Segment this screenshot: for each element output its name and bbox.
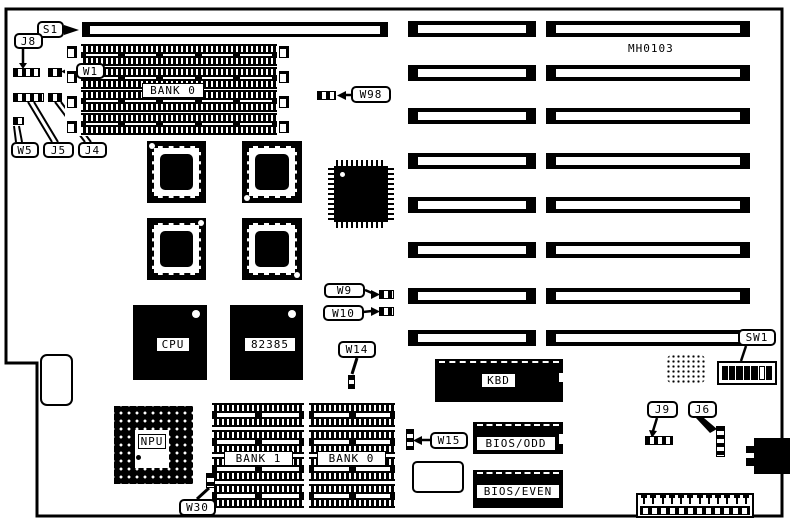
j9-jumper	[645, 436, 673, 445]
npu-label: NPU	[138, 434, 166, 449]
w5-jumper	[13, 117, 24, 125]
qfp-chip	[328, 160, 394, 228]
callout-w5: W5	[11, 142, 39, 158]
bank0-bottom-label: BANK 0	[317, 451, 386, 466]
j5-jumper	[13, 93, 44, 102]
plcc-chip	[147, 141, 206, 203]
w98-leader-arrow	[337, 91, 346, 100]
callout-w15: W15	[430, 432, 468, 449]
expansion-slot	[408, 108, 536, 124]
w15-leader-arrow	[413, 436, 422, 445]
power-connector-sockets	[640, 506, 750, 515]
j5-leader	[28, 102, 52, 142]
pin1-dot	[192, 310, 200, 318]
board-part-number: MH0103	[628, 42, 674, 55]
j6-leader	[696, 418, 717, 433]
dip-socket-row	[309, 403, 395, 427]
w14-jumper	[348, 375, 355, 389]
callout-j4: J4	[78, 142, 107, 158]
expansion-slot	[408, 242, 536, 258]
w15-jumper	[406, 429, 414, 450]
expansion-slot	[546, 65, 750, 81]
w14-leader	[352, 358, 357, 374]
j5-leader	[34, 102, 58, 142]
expansion-slot	[546, 330, 750, 346]
callout-w1: W1	[76, 63, 105, 79]
pin1-dot	[244, 195, 250, 201]
callout-sw1: SW1	[738, 329, 776, 346]
w5-leader	[14, 126, 16, 142]
socket-pins	[81, 58, 277, 66]
w5-leader	[19, 126, 22, 142]
s1-slot	[82, 22, 388, 37]
qfp-pins	[388, 168, 394, 220]
plcc-chip	[242, 141, 302, 203]
bank-end-brackets	[277, 44, 293, 135]
expansion-slot	[408, 153, 536, 169]
pin1-dot	[149, 143, 155, 149]
dip-socket-row	[309, 484, 395, 508]
power-connector	[636, 493, 754, 518]
speaker-pad	[666, 354, 706, 384]
expansion-slot	[408, 197, 536, 213]
bank-end-brackets	[65, 44, 81, 135]
expansion-slot	[408, 65, 536, 81]
power-connector-pins	[640, 495, 750, 506]
pin1-dot	[136, 455, 141, 460]
dip-socket-row	[212, 484, 304, 508]
w30-leader	[197, 488, 209, 499]
chip-notch	[559, 434, 563, 444]
socket-pins	[81, 44, 277, 52]
simm-socket	[81, 44, 277, 66]
callout-j6: J6	[688, 401, 717, 418]
simm-socket	[81, 113, 277, 135]
w9-jumper	[379, 290, 394, 299]
kbd-label: KBD	[481, 373, 516, 388]
w30-jumper	[206, 473, 215, 488]
82385-label: 82385	[244, 337, 296, 352]
expansion-slot	[546, 153, 750, 169]
callout-w10: W10	[323, 305, 364, 321]
expansion-slot	[546, 108, 750, 124]
keyboard-connector-tab	[746, 458, 755, 466]
keyboard-connector-tab	[746, 446, 755, 453]
j8-jumper	[13, 68, 40, 77]
sw1-dip-switch	[717, 361, 777, 385]
keyboard-connector	[754, 438, 790, 474]
cpu-label: CPU	[156, 337, 190, 352]
w9-leader	[365, 290, 372, 293]
plcc-chip	[242, 218, 302, 280]
crystal-oscillator	[412, 461, 464, 493]
w10-jumper	[379, 307, 394, 316]
callout-w98: W98	[351, 86, 391, 103]
expansion-slot	[546, 21, 750, 37]
expansion-slot	[408, 21, 536, 37]
pin1-dot	[198, 220, 204, 226]
s1-leader-arrow	[64, 25, 79, 35]
w1-jumper	[48, 68, 62, 77]
motherboard-diagram: MH0103 BANK 0	[0, 0, 791, 527]
bank0-top-label: BANK 0	[142, 83, 204, 98]
j9-leader	[653, 418, 657, 431]
bank1-label: BANK 1	[224, 451, 293, 466]
pin1-dot	[288, 310, 296, 318]
j6-jumper	[716, 426, 725, 457]
expansion-slot	[546, 242, 750, 258]
expansion-slot	[546, 197, 750, 213]
battery-component	[40, 354, 73, 406]
dip-socket-row	[212, 403, 304, 427]
j4-jumper	[48, 93, 62, 102]
sw1-leader	[741, 346, 746, 361]
bios-odd-label: BIOS/ODD	[476, 436, 556, 451]
callout-w14: W14	[338, 341, 376, 358]
chip-notch	[559, 373, 563, 382]
bios-even-label: BIOS/EVEN	[476, 484, 560, 499]
pin1-dot	[294, 272, 300, 278]
expansion-slot	[546, 288, 750, 304]
pin1-dot	[340, 172, 345, 177]
callout-j8: J8	[14, 33, 43, 49]
plcc-chip	[147, 218, 206, 280]
callout-j5: J5	[43, 142, 74, 158]
w98-jumper	[317, 91, 336, 100]
expansion-slot	[408, 288, 536, 304]
callout-w9: W9	[324, 283, 365, 298]
callout-j9: J9	[647, 401, 678, 418]
qfp-pins	[336, 222, 386, 228]
callout-w30: W30	[179, 499, 216, 516]
expansion-slot	[408, 330, 536, 346]
w10-leader	[363, 311, 372, 312]
